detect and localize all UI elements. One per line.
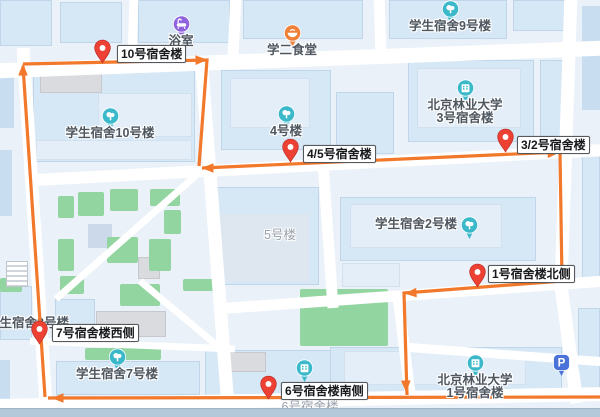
- tree-icon: [460, 216, 479, 240]
- checkpoint-pin[interactable]: [30, 320, 49, 345]
- poi-label-line: 学生宿舍7号楼: [76, 368, 158, 381]
- route-path: [23, 66, 45, 397]
- poi-tree-marker[interactable]: [460, 216, 479, 240]
- poi-label: 学生宿舍2号楼: [375, 218, 457, 231]
- checkpoint-label[interactable]: 7号宿舍楼西侧: [52, 324, 139, 342]
- checkpoint-pin[interactable]: [281, 138, 300, 163]
- route-arrow-icon: [52, 393, 64, 403]
- map-pin-icon: [30, 320, 49, 345]
- poi-label-line: 3号宿舍楼: [427, 112, 502, 125]
- route-arrow-icon: [401, 380, 411, 392]
- poi-label-line: 学二食堂: [267, 44, 317, 57]
- checkpoint-label[interactable]: 6号宿舍楼南侧: [281, 382, 368, 400]
- route-layer: [0, 0, 600, 417]
- map-pin-icon: [468, 263, 487, 288]
- poi-label: 学生宿舍7号楼: [76, 368, 158, 381]
- map-pin-icon: [259, 375, 278, 400]
- poi-label: 学生宿舍9号楼: [409, 20, 491, 33]
- checkpoint-label[interactable]: 1号宿舍楼北侧: [488, 265, 575, 283]
- checkpoint-pin[interactable]: [93, 39, 112, 64]
- poi-building-marker[interactable]: [295, 359, 314, 383]
- map-pin-icon: [281, 138, 300, 163]
- map-canvas[interactable]: 5号楼学生宿舍8号楼6号宿舍楼 浴室 学二食堂 学生宿舍9号楼 北京林业大学3号…: [0, 0, 600, 417]
- map-pin-icon: [496, 128, 515, 153]
- svg-text:P: P: [557, 358, 565, 370]
- route-arrow-icon: [404, 288, 417, 298]
- building-icon: [295, 359, 314, 383]
- poi-label-line: 学生宿舍10号楼: [66, 127, 155, 140]
- poi-label-line: 学生宿舍9号楼: [409, 20, 491, 33]
- poi-label-line: 学生宿舍2号楼: [375, 218, 457, 231]
- checkpoint-label[interactable]: 10号宿舍楼: [117, 45, 186, 63]
- poi-label-line: 1号宿舍楼: [437, 387, 512, 400]
- route-path: [202, 152, 562, 280]
- parking-icon: P: [552, 353, 571, 377]
- poi-label: 学生宿舍10号楼: [66, 127, 155, 140]
- map-pin-icon: [93, 39, 112, 64]
- poi-label: 北京林业大学3号宿舍楼: [427, 99, 502, 125]
- poi-label: 4号楼: [270, 125, 302, 138]
- poi-parking-marker[interactable]: P: [552, 353, 571, 377]
- route-arrow-icon: [202, 163, 214, 173]
- poi-label-line: 4号楼: [270, 125, 302, 138]
- checkpoint-pin[interactable]: [496, 128, 515, 153]
- poi-label: 学二食堂: [267, 44, 317, 57]
- checkpoint-label[interactable]: 3/2号宿舍楼: [517, 136, 590, 154]
- checkpoint-label[interactable]: 4/5号宿舍楼: [303, 145, 376, 163]
- poi-label: 北京林业大学1号宿舍楼: [437, 374, 512, 400]
- checkpoint-pin[interactable]: [468, 263, 487, 288]
- checkpoint-pin[interactable]: [259, 375, 278, 400]
